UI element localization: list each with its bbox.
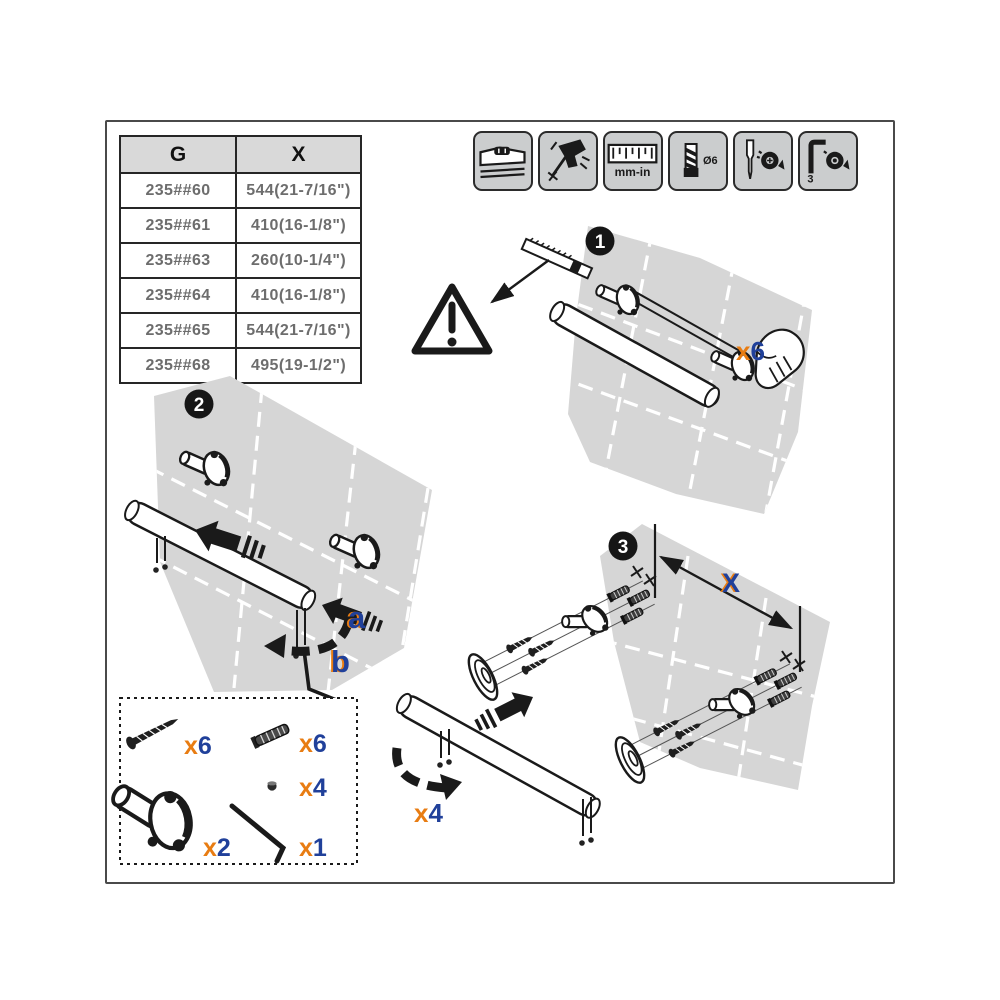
qty-n: 6	[313, 730, 327, 758]
qty-x: x	[299, 834, 313, 862]
qty-n: 4	[428, 798, 443, 828]
step-number: 1	[595, 232, 606, 253]
step-1-illustration: x6 1	[415, 226, 816, 514]
qty-x: x	[736, 336, 751, 366]
step2-label-a: a	[348, 600, 366, 635]
qty-n: 6	[198, 732, 212, 760]
step1-quantity-label: x6	[736, 336, 765, 366]
qty-x: x	[414, 798, 429, 828]
hexkey-qty-label: x1	[299, 834, 327, 862]
qty-n: 4	[313, 774, 327, 802]
dimension-x-label: X	[722, 568, 740, 598]
step-2-illustration: a b 2	[122, 376, 432, 701]
step-number: 2	[194, 395, 205, 416]
qty-x: x	[299, 730, 313, 758]
parts-box: x6 x6 x4 x2 x1	[104, 698, 357, 864]
rotate-arrowhead	[440, 774, 462, 800]
set-screw-icon	[267, 781, 276, 790]
step-3-illustration: X x4 3	[394, 524, 830, 846]
installation-instruction-sheet: G X 235##60544(21-7/16") 235##61410(16-1…	[0, 0, 1000, 1000]
qty-n: 1	[313, 834, 327, 862]
bracket-qty-label: x2	[203, 834, 231, 862]
setscrew-qty-label: x4	[299, 774, 327, 802]
qty-x: x	[299, 774, 313, 802]
step2-label-b: b	[331, 644, 350, 679]
qty-n: 6	[750, 336, 764, 366]
step-3-badge: 3	[609, 532, 638, 561]
warning-triangle-icon	[415, 287, 489, 351]
step-number: 3	[618, 537, 629, 558]
caution-pointer-arrow	[492, 260, 549, 302]
step-2-badge: 2	[185, 390, 214, 419]
qty-x: x	[184, 732, 198, 760]
screw-qty-label: x6	[184, 732, 212, 760]
step-1-badge: 1	[586, 227, 615, 256]
assembly-diagram: x6 1	[0, 0, 1000, 1000]
plug-qty-label: x6	[299, 730, 327, 758]
qty-x: x	[203, 834, 217, 862]
qty-n: 2	[217, 834, 231, 862]
step3-quantity-label: x4	[414, 798, 443, 828]
rotate-direction-arc	[397, 748, 446, 788]
